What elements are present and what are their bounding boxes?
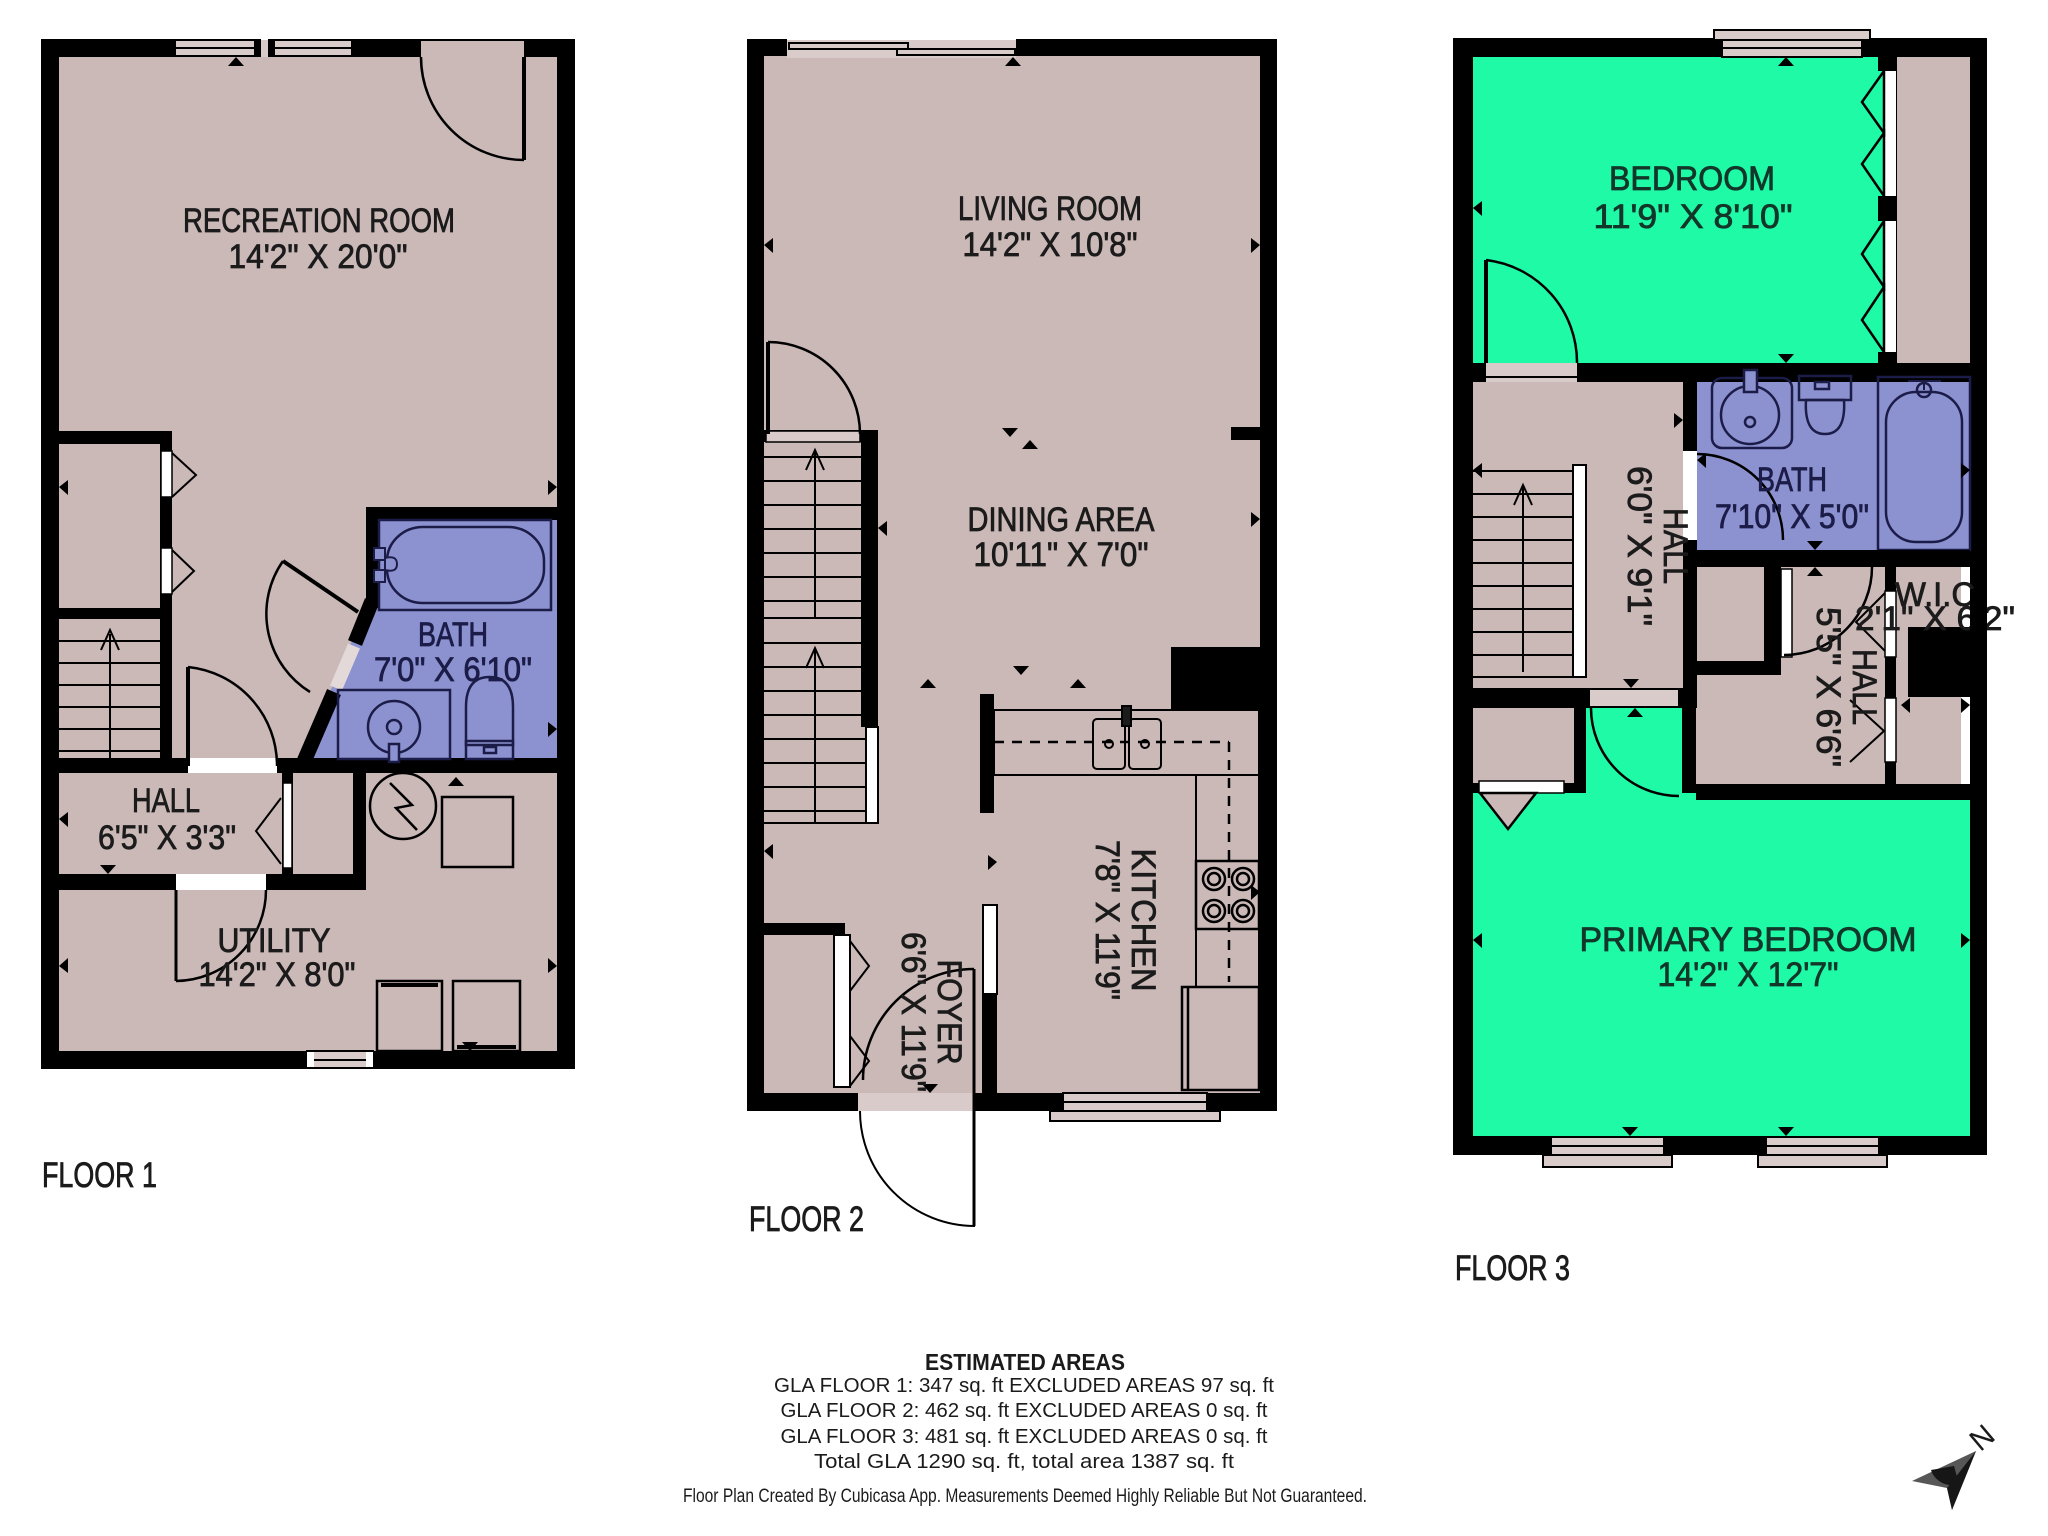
svg-text:UTILITY: UTILITY — [218, 922, 331, 960]
svg-text:FOYER: FOYER — [930, 960, 968, 1065]
svg-text:14'2" X 20'0": 14'2" X 20'0" — [229, 238, 408, 276]
svg-text:6'6" X 11'9": 6'6" X 11'9" — [894, 932, 932, 1092]
svg-text:7'0" X 6'10": 7'0" X 6'10" — [374, 651, 532, 689]
svg-text:6'5" X 3'3": 6'5" X 3'3" — [98, 819, 236, 857]
svg-text:GLA FLOOR 3: 481 sq. ft EXCLUD: GLA FLOOR 3: 481 sq. ft EXCLUDED AREAS 0… — [781, 1426, 1268, 1448]
svg-text:14'2" X 8'0": 14'2" X 8'0" — [199, 956, 356, 994]
svg-text:14'2" X 12'7": 14'2" X 12'7" — [1658, 956, 1839, 994]
svg-text:10'11" X 7'0": 10'11" X 7'0" — [974, 536, 1149, 574]
svg-text:14'2" X 10'8": 14'2" X 10'8" — [963, 226, 1138, 264]
svg-text:HALL: HALL — [1656, 508, 1694, 584]
svg-text:DINING AREA: DINING AREA — [968, 501, 1155, 539]
svg-text:7'10" X 5'0": 7'10" X 5'0" — [1715, 498, 1869, 536]
svg-text:HALL: HALL — [1845, 649, 1883, 725]
svg-text:Floor Plan Created By Cubicasa: Floor Plan Created By Cubicasa App. Meas… — [683, 1486, 1367, 1507]
svg-text:GLA FLOOR 1: 347 sq. ft EXCLUD: GLA FLOOR 1: 347 sq. ft EXCLUDED AREAS 9… — [774, 1375, 1274, 1397]
svg-text:KITCHEN: KITCHEN — [1124, 849, 1162, 992]
svg-text:Total GLA 1290 sq. ft, total a: Total GLA 1290 sq. ft, total area 1387 s… — [814, 1451, 1234, 1473]
svg-text:ESTIMATED AREAS: ESTIMATED AREAS — [925, 1349, 1125, 1375]
svg-text:11'9" X 8'10": 11'9" X 8'10" — [1594, 198, 1793, 236]
svg-text:FLOOR 3: FLOOR 3 — [1455, 1249, 1570, 1288]
svg-text:2'1" X 6'2": 2'1" X 6'2" — [1855, 600, 2015, 638]
svg-text:FLOOR 1: FLOOR 1 — [42, 1156, 157, 1195]
svg-text:BATH: BATH — [1757, 461, 1827, 499]
svg-text:6'0" X 9'1": 6'0" X 9'1" — [1620, 466, 1658, 626]
svg-text:FLOOR 2: FLOOR 2 — [749, 1200, 864, 1239]
svg-text:HALL: HALL — [132, 782, 200, 820]
svg-text:BATH: BATH — [418, 616, 488, 654]
svg-text:RECREATION ROOM: RECREATION ROOM — [183, 202, 455, 240]
svg-text:GLA FLOOR 2: 462 sq. ft EXCLUD: GLA FLOOR 2: 462 sq. ft EXCLUDED AREAS 0… — [781, 1400, 1268, 1422]
svg-text:BEDROOM: BEDROOM — [1609, 160, 1775, 198]
svg-text:LIVING ROOM: LIVING ROOM — [958, 190, 1142, 228]
svg-text:PRIMARY BEDROOM: PRIMARY BEDROOM — [1580, 921, 1917, 959]
svg-text:7'8" X 11'9": 7'8" X 11'9" — [1088, 840, 1126, 1000]
svg-text:5'5" X 6'6": 5'5" X 6'6" — [1809, 607, 1847, 767]
